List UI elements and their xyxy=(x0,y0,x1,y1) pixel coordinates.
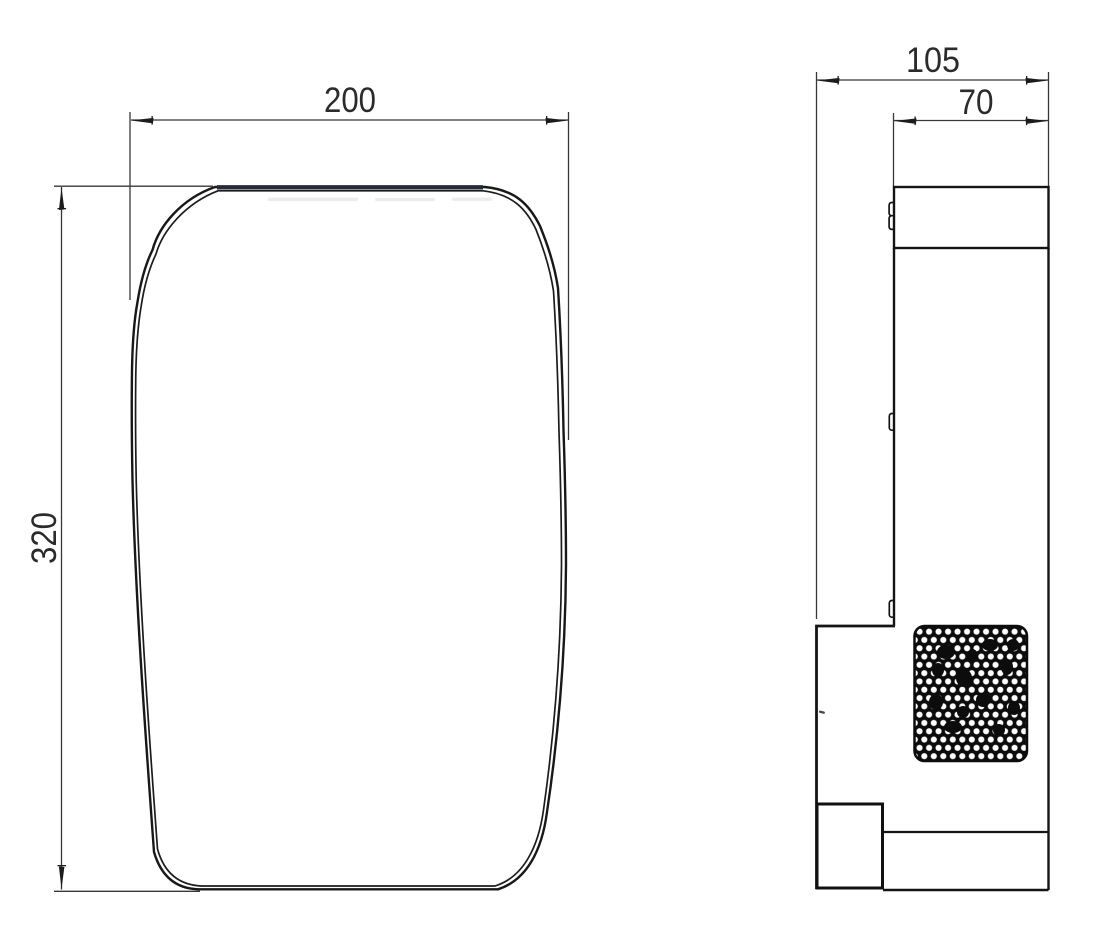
svg-text:200: 200 xyxy=(324,81,376,120)
svg-text:105: 105 xyxy=(906,41,960,80)
svg-text:320: 320 xyxy=(25,512,64,564)
svg-text:70: 70 xyxy=(959,83,994,122)
